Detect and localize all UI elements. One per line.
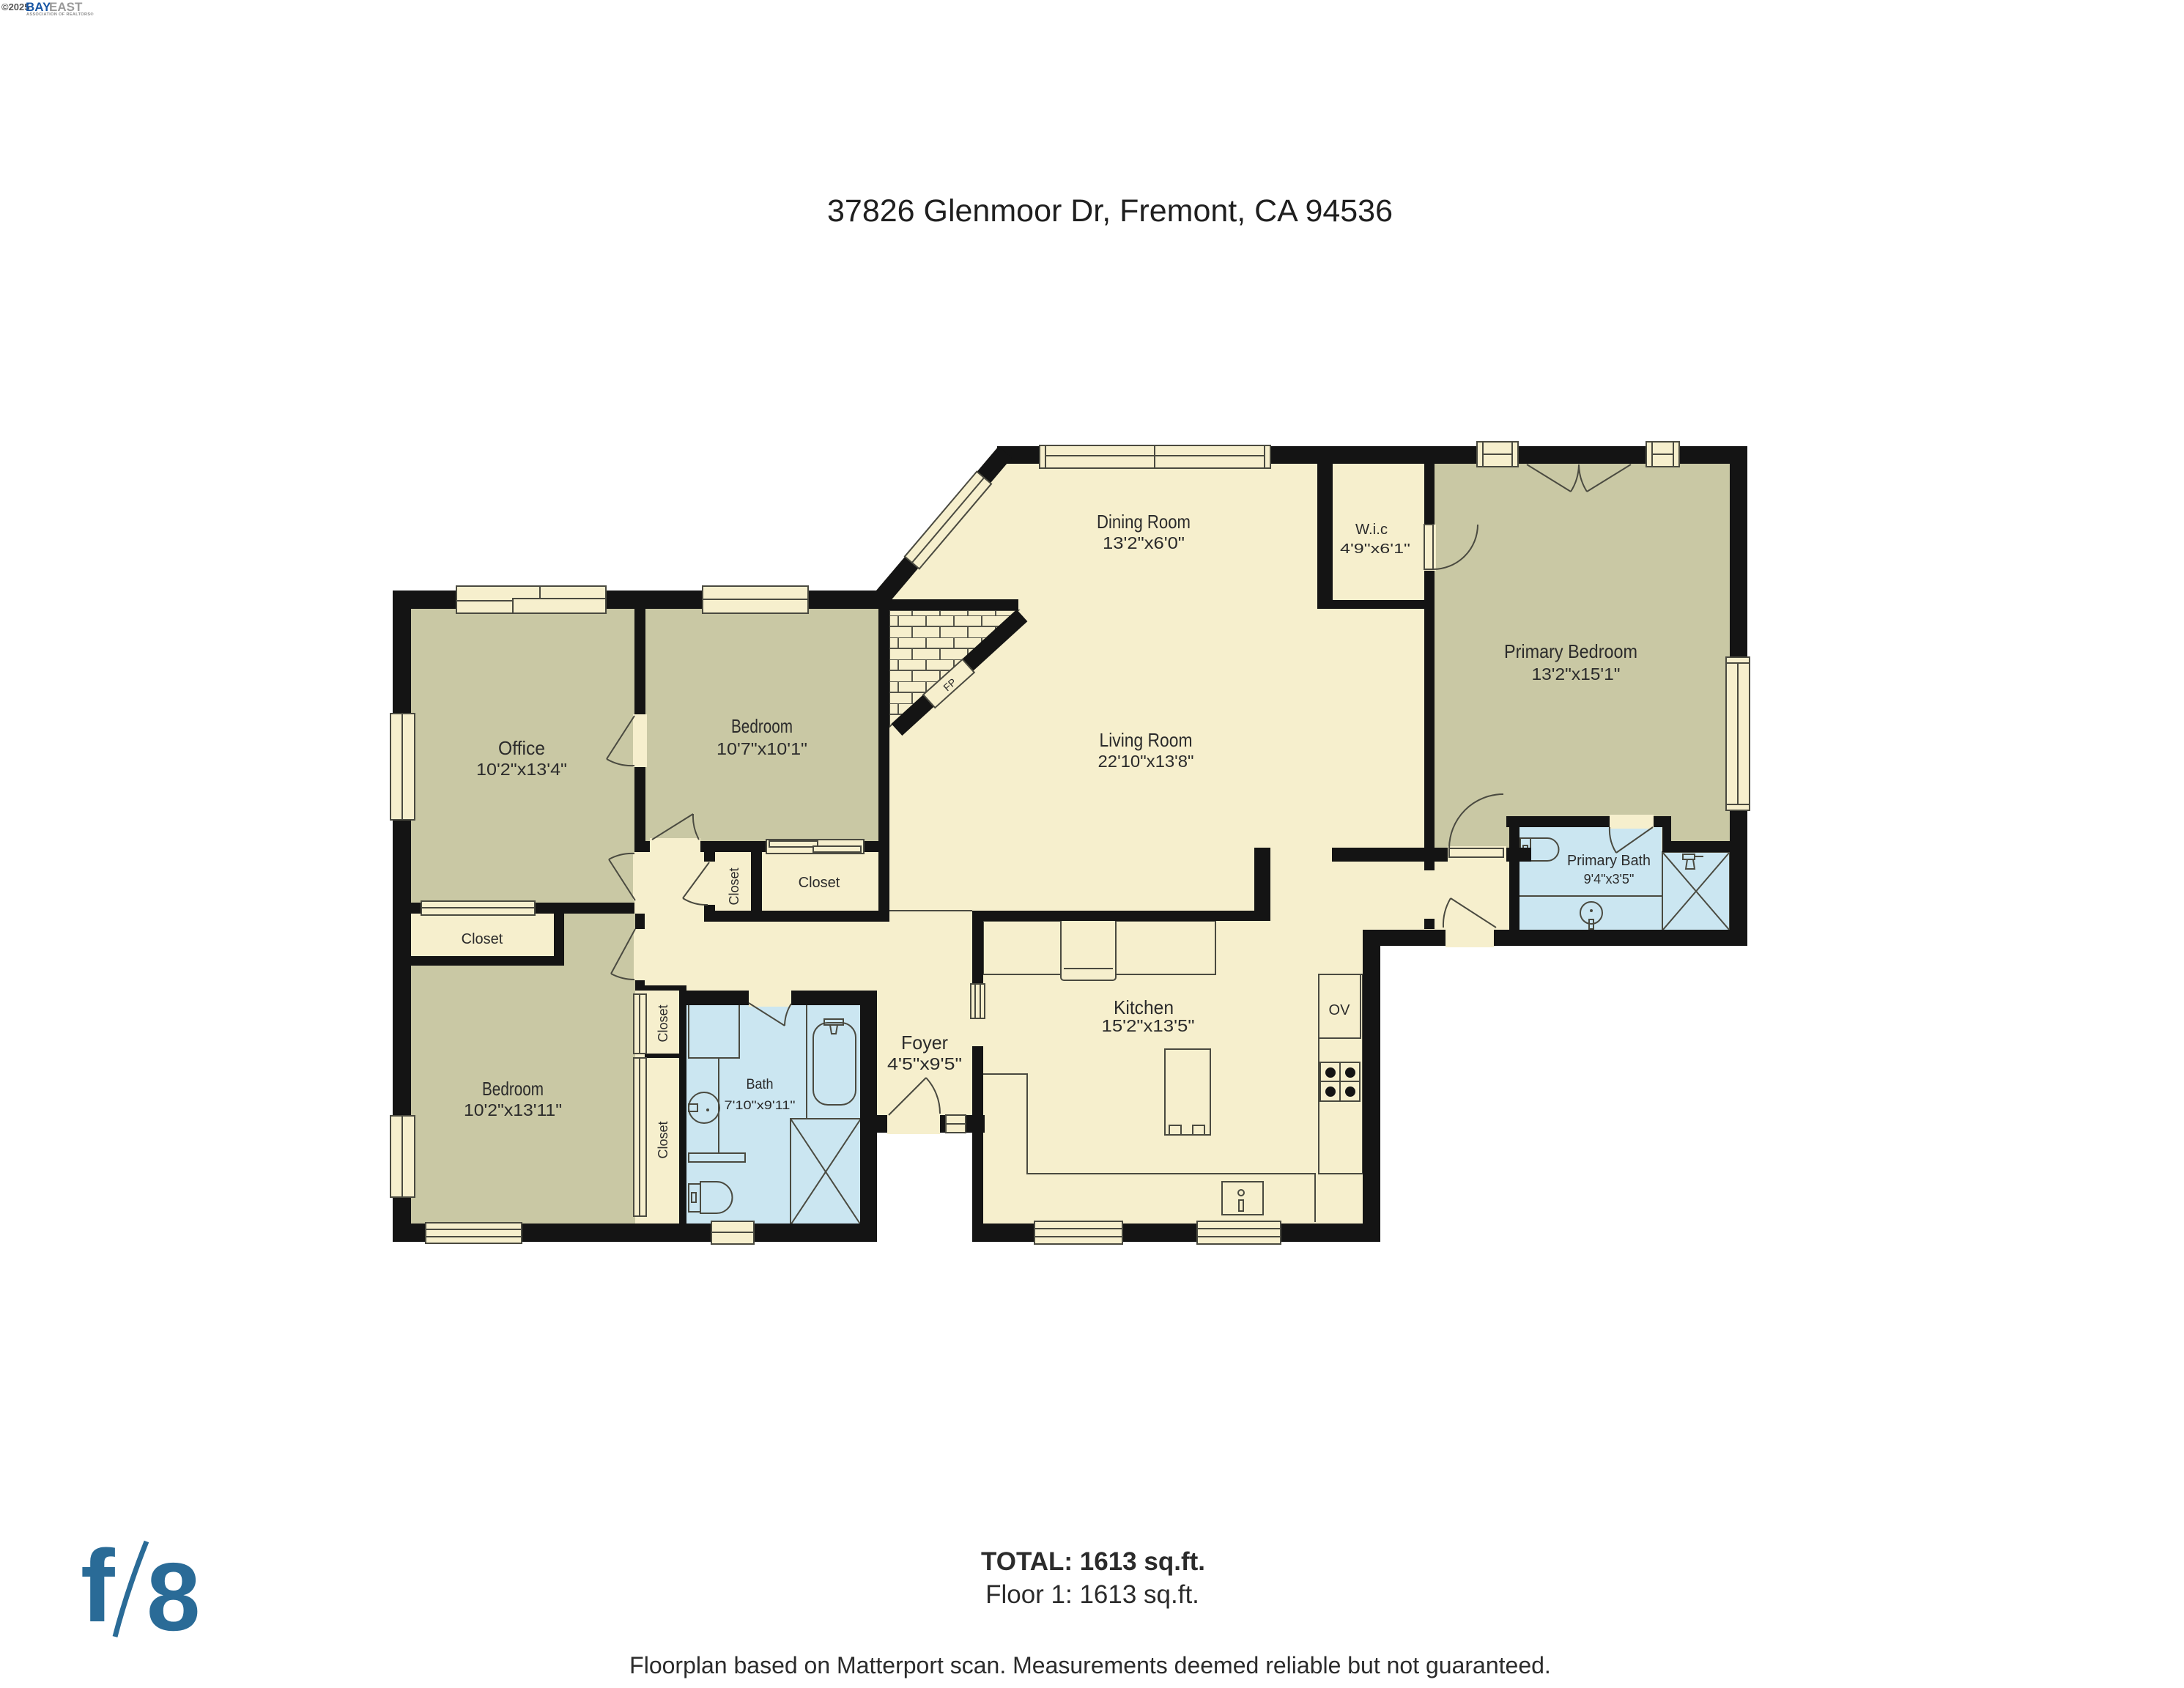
svg-text:f: f [81, 1528, 115, 1643]
svg-text:Bedroom: Bedroom [731, 715, 793, 737]
svg-text:Closet: Closet [799, 875, 840, 891]
svg-text:Closet: Closet [656, 1121, 670, 1158]
svg-text:Closet: Closet [656, 1004, 670, 1042]
svg-text:W.i.c: W.i.c [1355, 522, 1388, 538]
svg-text:Kitchen: Kitchen [1114, 996, 1174, 1018]
svg-text:8: 8 [147, 1543, 200, 1651]
svg-text:10'2"x13'4": 10'2"x13'4" [476, 760, 567, 779]
svg-text:Floorplan based on Matterport: Floorplan based on Matterport scan. Meas… [629, 1652, 1551, 1678]
svg-text:TOTAL: 1613 sq.ft.: TOTAL: 1613 sq.ft. [981, 1547, 1205, 1576]
svg-text:10'2"x13'11": 10'2"x13'11" [464, 1100, 562, 1119]
svg-text:4'9"x6'1": 4'9"x6'1" [1340, 541, 1410, 556]
svg-text:22'10"x13'8": 22'10"x13'8" [1098, 752, 1194, 771]
svg-text:Floor 1: 1613 sq.ft.: Floor 1: 1613 sq.ft. [985, 1580, 1199, 1609]
svg-text:4'5"x9'5": 4'5"x9'5" [887, 1054, 962, 1073]
svg-text:Foyer: Foyer [901, 1032, 948, 1054]
svg-text:13'2"x15'1": 13'2"x15'1" [1532, 665, 1621, 684]
svg-text:15'2"x13'5": 15'2"x13'5" [1102, 1016, 1195, 1035]
svg-text:OV: OV [1329, 1002, 1351, 1018]
svg-text:Dining Room: Dining Room [1097, 511, 1191, 533]
svg-text:9'4"x3'5": 9'4"x3'5" [1584, 872, 1635, 886]
svg-text:Primary Bath: Primary Bath [1567, 853, 1651, 869]
svg-text:Bedroom: Bedroom [482, 1078, 544, 1100]
svg-text:7'10"x9'11": 7'10"x9'11" [725, 1098, 796, 1112]
svg-text:37826 Glenmoor Dr, Fremont, CA: 37826 Glenmoor Dr, Fremont, CA 94536 [827, 193, 1393, 229]
svg-text:13'2"x6'0": 13'2"x6'0" [1103, 533, 1185, 552]
svg-text:Office: Office [498, 737, 545, 759]
svg-text:10'7"x10'1": 10'7"x10'1" [717, 739, 807, 758]
svg-text:ASSOCIATION OF REALTORS®: ASSOCIATION OF REALTORS® [26, 12, 94, 17]
svg-text:Closet: Closet [462, 931, 503, 947]
svg-text:Closet: Closet [727, 867, 741, 905]
svg-text:Primary Bedroom: Primary Bedroom [1504, 640, 1637, 662]
svg-text:Bath: Bath [747, 1077, 774, 1092]
svg-text:Living Room: Living Room [1100, 729, 1193, 751]
